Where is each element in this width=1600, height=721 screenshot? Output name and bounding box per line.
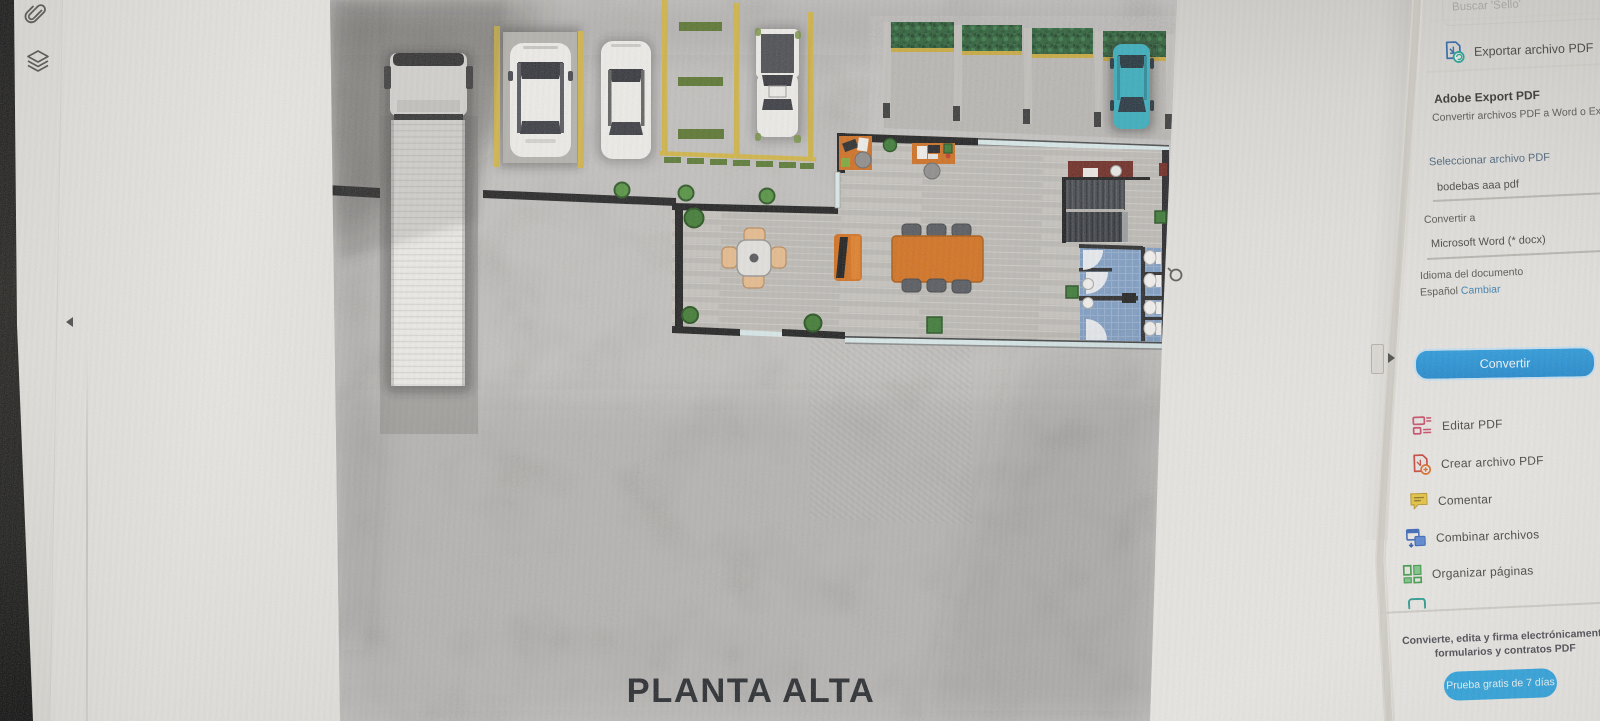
svg-text:PLANTA ALTA: PLANTA ALTA — [627, 672, 876, 710]
